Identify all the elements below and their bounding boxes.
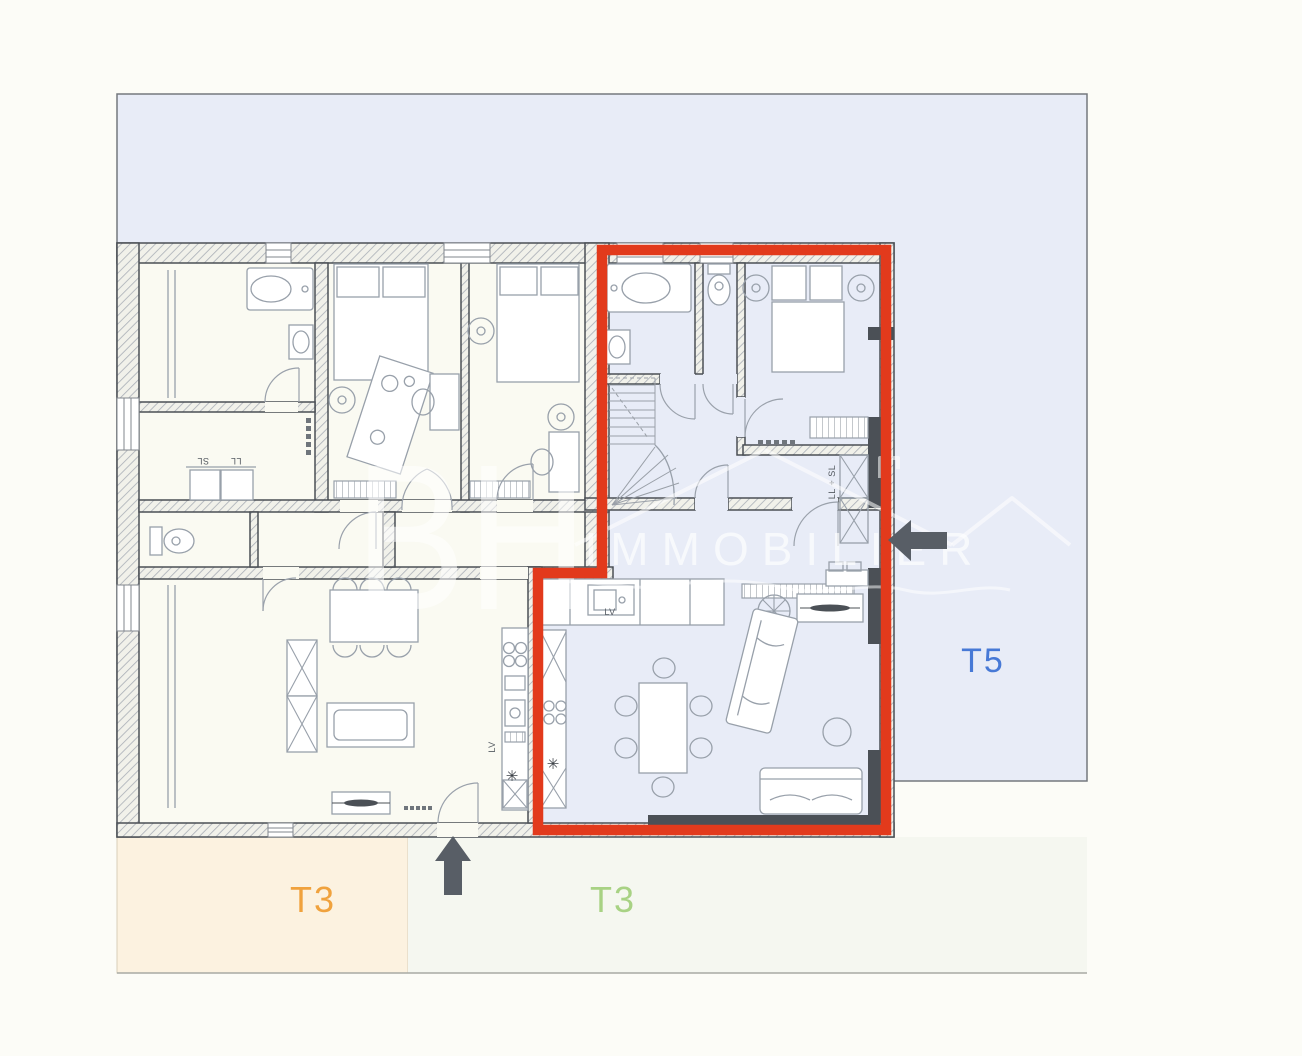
entrance-arrows xyxy=(435,520,947,895)
unit-label-t3-right[interactable]: T3 xyxy=(590,882,636,918)
entrance-arrow-left-icon xyxy=(888,520,947,561)
unit-label-t5[interactable]: T5 xyxy=(961,644,1005,678)
unit-label-t3-left[interactable]: T3 xyxy=(290,882,336,918)
floor-plan-page: LV LV SL LL LL + SL ✳ ✳ BH IMMOBILIER T3… xyxy=(0,0,1302,1056)
entrance-arrow-up-icon xyxy=(435,836,471,895)
selected-unit-outline[interactable] xyxy=(538,250,886,830)
